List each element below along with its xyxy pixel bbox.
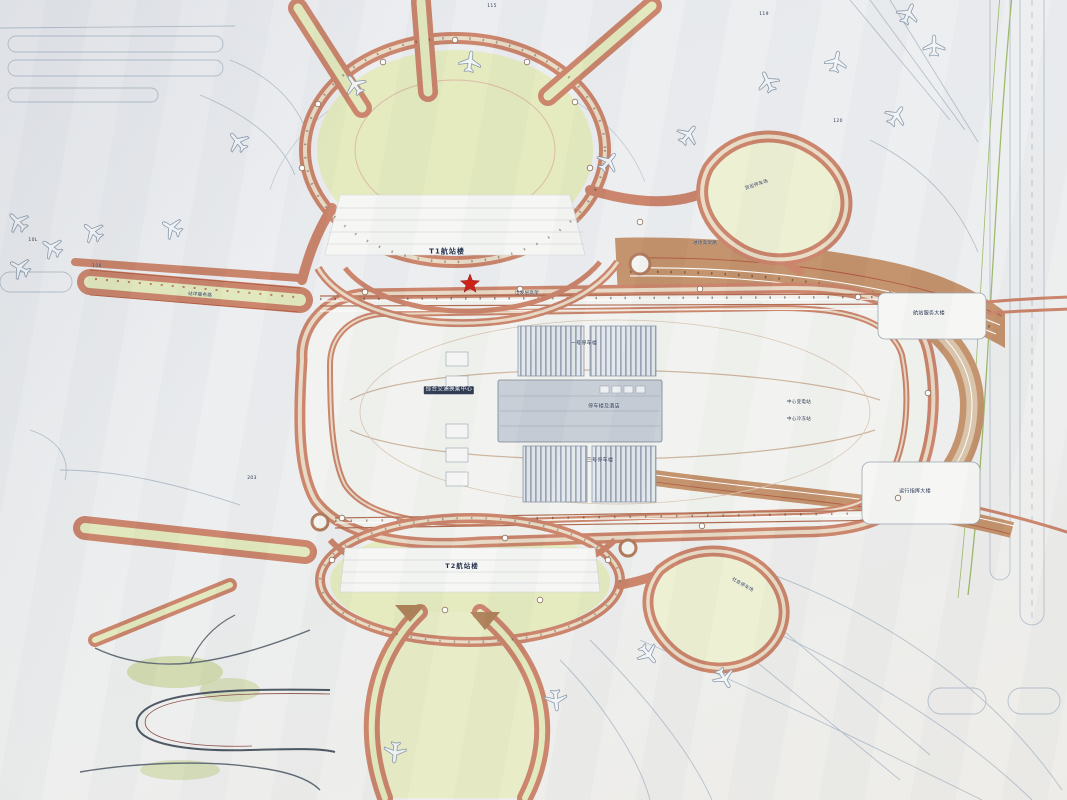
t2-southeast-loop	[648, 551, 784, 668]
aircraft-icon	[37, 233, 67, 263]
aircraft-icon	[753, 67, 782, 95]
airport-master-plan-photo: T1航站楼 T2航站楼 综合交通换乘中心一号停车楼停车楼及酒店二号停车楼航站服务…	[0, 0, 1067, 800]
aircraft-icon	[881, 101, 911, 131]
aircraft-icon	[923, 35, 945, 56]
plan-artwork	[0, 0, 1067, 800]
t1-northeast-loop	[702, 137, 846, 260]
aircraft-icon	[823, 49, 849, 74]
aircraft-icon	[673, 120, 703, 150]
gtc-building	[498, 380, 662, 442]
interchange-inset	[80, 615, 335, 790]
aircraft-icon	[2, 206, 32, 236]
aircraft-icon	[223, 127, 253, 157]
aircraft-icon	[5, 253, 34, 283]
aircraft-icon	[78, 217, 108, 247]
aircraft-icon	[157, 213, 186, 243]
